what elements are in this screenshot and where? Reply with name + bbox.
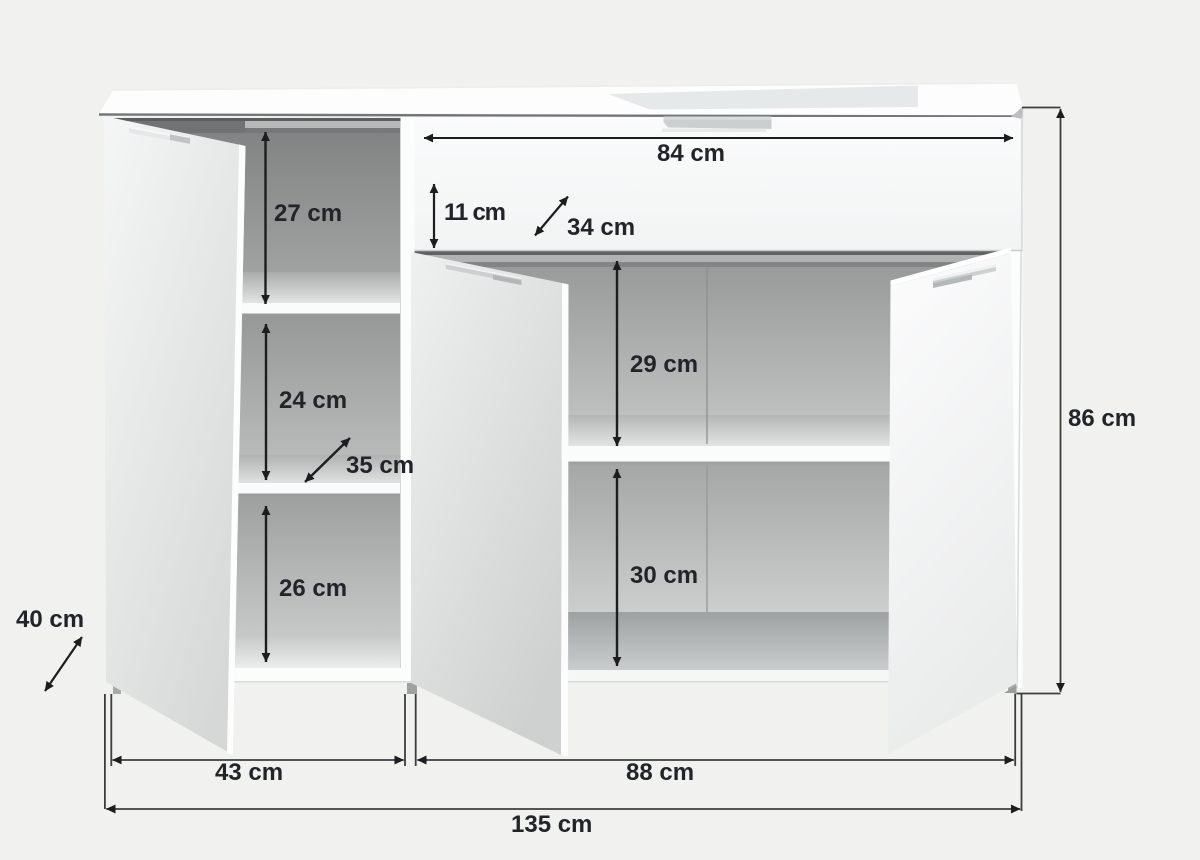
svg-text:88 cm: 88 cm	[626, 759, 694, 786]
svg-text:84 cm: 84 cm	[657, 140, 725, 167]
svg-text:35 cm: 35 cm	[346, 452, 414, 479]
svg-text:43 cm: 43 cm	[215, 759, 283, 786]
svg-text:135 cm: 135 cm	[511, 811, 592, 838]
svg-text:34 cm: 34 cm	[567, 214, 635, 241]
svg-text:86 cm: 86 cm	[1068, 405, 1136, 432]
svg-text:27 cm: 27 cm	[274, 200, 342, 227]
svg-text:11 cm: 11 cm	[444, 199, 505, 226]
svg-text:26 cm: 26 cm	[279, 575, 347, 602]
svg-text:30 cm: 30 cm	[630, 562, 698, 589]
svg-text:40 cm: 40 cm	[16, 606, 84, 633]
svg-text:29 cm: 29 cm	[630, 351, 698, 378]
svg-text:24 cm: 24 cm	[279, 387, 347, 414]
